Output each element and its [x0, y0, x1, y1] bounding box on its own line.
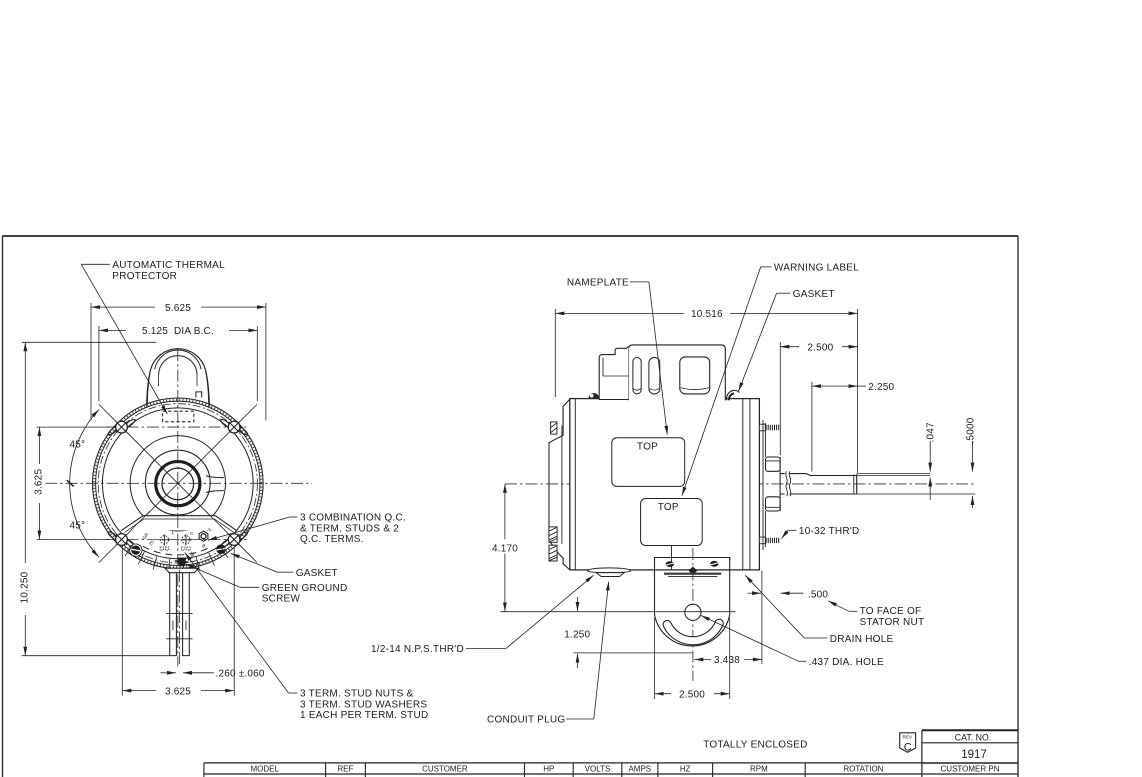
svg-text:45°: 45°: [70, 520, 86, 531]
svg-text:RPM: RPM: [750, 765, 768, 774]
svg-text:1 EACH PER TERM. STUD: 1 EACH PER TERM. STUD: [300, 710, 428, 721]
svg-text:10.516: 10.516: [691, 309, 723, 320]
svg-text:TOP: TOP: [637, 441, 658, 452]
svg-text:VOLTS: VOLTS: [585, 765, 611, 774]
svg-text:4.170: 4.170: [492, 544, 518, 555]
svg-text:3.625: 3.625: [165, 686, 191, 697]
svg-text:1/2-14 N.P.S.THR'D: 1/2-14 N.P.S.THR'D: [371, 644, 464, 655]
svg-text:& TERM. STUDS & 2: & TERM. STUDS & 2: [300, 523, 399, 534]
svg-text:REV.: REV.: [903, 735, 913, 740]
svg-text:10-32 THR'D: 10-32 THR'D: [799, 526, 860, 537]
svg-text:.260 ±.060: .260 ±.060: [216, 669, 265, 680]
svg-text:AUTOMATIC THERMAL: AUTOMATIC THERMAL: [112, 260, 225, 271]
svg-text:5.125 DIA B.C.: 5.125 DIA B.C.: [142, 326, 214, 337]
svg-text:HZ: HZ: [680, 765, 691, 774]
svg-text:NAMEPLATE: NAMEPLATE: [567, 278, 629, 289]
svg-text:DRAIN HOLE: DRAIN HOLE: [830, 634, 894, 645]
svg-text:1.250: 1.250: [564, 630, 590, 641]
svg-text:10.250: 10.250: [20, 571, 31, 603]
svg-text:TOTALLY ENCLOSED: TOTALLY ENCLOSED: [703, 740, 807, 751]
svg-text:2.500: 2.500: [807, 343, 833, 354]
svg-text:.500: .500: [808, 589, 829, 600]
svg-text:CAT. NO.: CAT. NO.: [955, 732, 992, 742]
svg-text:1917: 1917: [961, 749, 987, 761]
svg-text:TOP: TOP: [658, 502, 679, 513]
svg-text:.047: .047: [926, 422, 937, 443]
svg-text:L: L: [172, 530, 175, 535]
svg-text:HP: HP: [543, 765, 554, 774]
svg-text:3 TERM. STUD WASHERS: 3 TERM. STUD WASHERS: [300, 699, 427, 710]
svg-text:AMPS: AMPS: [628, 765, 651, 774]
svg-text:.437 DIA. HOLE: .437 DIA. HOLE: [809, 657, 884, 668]
svg-text:GASKET: GASKET: [793, 289, 835, 300]
svg-text:3 COMBINATION Q.C.: 3 COMBINATION Q.C.: [300, 513, 406, 524]
svg-text:CUSTOMER: CUSTOMER: [422, 765, 468, 774]
svg-text:2.250: 2.250: [868, 382, 894, 393]
svg-text:TO FACE OF: TO FACE OF: [860, 606, 922, 617]
svg-text:C: C: [904, 741, 912, 753]
svg-text:3.625: 3.625: [34, 469, 45, 495]
svg-text:2.500: 2.500: [679, 690, 705, 701]
svg-text:REF: REF: [337, 765, 353, 774]
svg-text:3.438: 3.438: [714, 655, 740, 666]
svg-text:5.625: 5.625: [165, 303, 191, 314]
svg-text:STATOR NUT: STATOR NUT: [860, 617, 925, 628]
svg-text:3 TERM. STUD NUTS &: 3 TERM. STUD NUTS &: [300, 689, 414, 700]
svg-text:WARNING LABEL: WARNING LABEL: [774, 263, 859, 274]
svg-text:CONDUIT PLUG: CONDUIT PLUG: [487, 714, 565, 725]
svg-text:CUSTOMER PN: CUSTOMER PN: [941, 765, 1000, 774]
svg-text:.5000: .5000: [966, 417, 977, 443]
svg-text:GREEN GROUND: GREEN GROUND: [262, 583, 348, 594]
svg-text:ROTATION: ROTATION: [843, 765, 883, 774]
svg-text:PROTECTOR: PROTECTOR: [112, 271, 177, 282]
svg-text:Q.C. TERMS.: Q.C. TERMS.: [300, 534, 364, 545]
svg-text:MODEL: MODEL: [250, 765, 279, 774]
svg-text:SCREW: SCREW: [262, 594, 301, 605]
svg-text:45°: 45°: [70, 439, 86, 450]
svg-text:GASKET: GASKET: [296, 568, 338, 579]
